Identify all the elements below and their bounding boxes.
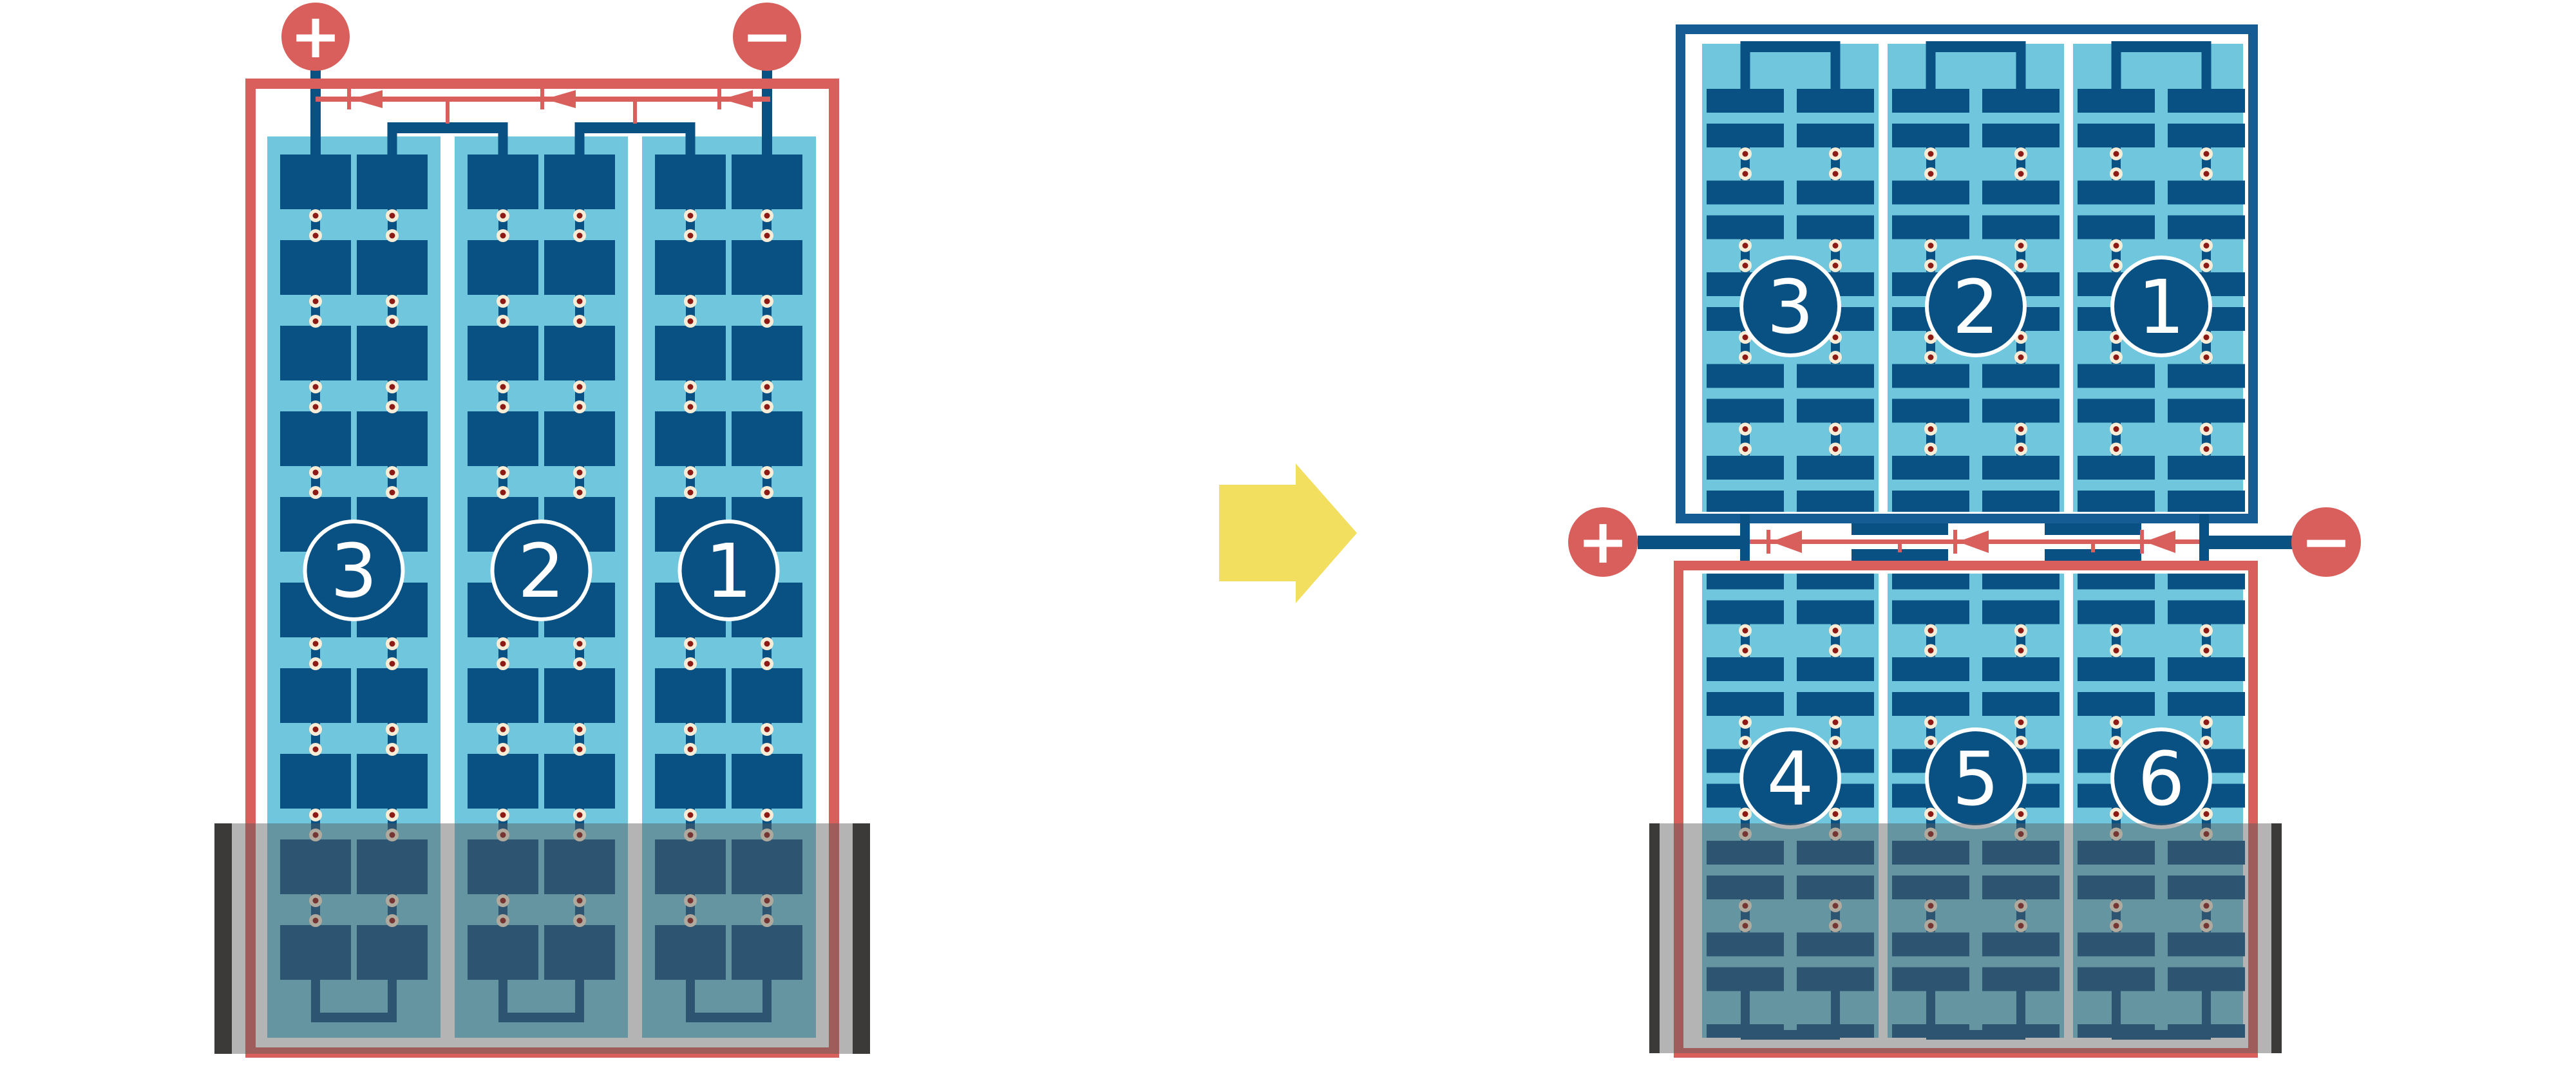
top-jumper-connector (2112, 52, 2121, 89)
battery-cell (1982, 657, 2060, 681)
cell-connector-dot-icon (390, 812, 395, 818)
cell-connector-dot-icon (1928, 151, 1934, 157)
cell-connector-dot-icon (2204, 355, 2210, 361)
cell-connector-dot-icon (313, 233, 319, 239)
cell-connector-dot-icon (1928, 648, 1934, 653)
cell-connector-dot-icon (1833, 811, 1839, 817)
tray-side-rail (1649, 823, 1660, 1053)
cell-connector-dot-icon (2204, 426, 2210, 432)
cell-connector-dot-icon (1928, 628, 1934, 633)
cell-connector-dot-icon (2018, 628, 2024, 633)
cell-connector-dot-icon (1928, 446, 1934, 452)
battery-cell (544, 155, 615, 209)
battery-cell (1707, 657, 1784, 681)
battery-cell (1892, 216, 1969, 239)
diode-arrow-icon (2145, 530, 2175, 553)
cell-connector-dot-icon (764, 213, 770, 219)
minus-terminal-icon-label: − (2300, 507, 2352, 577)
battery-cell (1797, 456, 1874, 480)
cell-connector-dot-icon (688, 727, 694, 733)
cell-connector-dot-icon (2114, 628, 2119, 633)
battery-cell (1982, 692, 2060, 716)
cell-connector-dot-icon (1743, 426, 1748, 432)
cell-connector-dot-icon (1743, 355, 1748, 361)
battery-cell (2168, 216, 2245, 239)
cell-connector-dot-icon (2018, 355, 2024, 361)
cell-connector-dot-icon (390, 661, 395, 667)
cell-connector-dot-icon (390, 319, 395, 324)
cell-connector-dot-icon (2018, 335, 2024, 341)
battery-cell (1982, 574, 2060, 590)
cell-connector-dot-icon (577, 641, 583, 647)
cell-connector-dot-icon (500, 727, 506, 733)
cell-connector-dot-icon (2204, 151, 2210, 157)
diode-tick (1953, 530, 1957, 554)
cell-connector-dot-icon (500, 490, 506, 496)
left-battery-module: 321+− (214, 1, 870, 1054)
battery-cell (544, 668, 615, 723)
battery-cell (1892, 491, 1969, 512)
cell-connector-dot-icon (2018, 740, 2024, 745)
battery-cell (1707, 692, 1784, 716)
column-number-label: 3 (330, 529, 377, 615)
cell-connector-dot-icon (1928, 740, 1934, 745)
bus-drop-link (2091, 544, 2095, 552)
transform-arrow-icon (1219, 464, 1357, 603)
battery-cell (1892, 181, 1969, 205)
cell-connector-dot-icon (1833, 720, 1839, 726)
battery-cell (1797, 657, 1874, 681)
battery-cell (2078, 574, 2155, 590)
battery-cell (1707, 491, 1784, 512)
cell-connector-dot-icon (390, 384, 395, 390)
cell-connector-dot-icon (2114, 426, 2119, 432)
cell-connector-dot-icon (577, 812, 583, 818)
battery-cell (357, 326, 428, 380)
bus-drop-link (1898, 544, 1902, 552)
cell-connector-dot-icon (500, 299, 506, 304)
cell-connector-dot-icon (577, 661, 583, 667)
cell-connector-dot-icon (2114, 720, 2119, 726)
battery-cell (1707, 364, 1784, 388)
cell-connector-dot-icon (390, 747, 395, 753)
battery-tray-overlay (232, 823, 853, 1054)
battery-cell (1982, 89, 2060, 113)
cell-connector-dot-icon (1833, 740, 1839, 745)
battery-cell (2168, 491, 2245, 512)
top-jumper-connector (575, 122, 696, 133)
diode-tick (1766, 530, 1770, 554)
battery-cell (357, 668, 428, 723)
cell-connector-dot-icon (688, 661, 694, 667)
cell-connector-dot-icon (500, 747, 506, 753)
cell-connector-dot-icon (688, 319, 694, 324)
battery-cell (280, 668, 351, 723)
battery-cell (1797, 216, 1874, 239)
cell-connector-dot-icon (1833, 171, 1839, 177)
battery-cell (1797, 399, 1874, 423)
cell-connector-dot-icon (577, 747, 583, 753)
column-divider (1879, 44, 1888, 512)
cell-connector-dot-icon (764, 299, 770, 304)
battery-cell (1707, 216, 1784, 239)
battery-cell (280, 411, 351, 466)
battery-cell (2078, 657, 2155, 681)
top-jumper-connector (575, 133, 585, 155)
cell-connector-dot-icon (2018, 648, 2024, 653)
cell-connector-dot-icon (2018, 171, 2024, 177)
battery-cell (1982, 216, 2060, 239)
battery-cell (544, 411, 615, 466)
battery-cell (1892, 89, 1969, 113)
battery-cell (1982, 399, 2060, 423)
battery-cell (2168, 124, 2245, 147)
battery-cell (357, 240, 428, 295)
battery-cell (1707, 574, 1784, 590)
cell-connector-dot-icon (688, 233, 694, 239)
top-jumper-connector (388, 122, 508, 133)
battery-cell (732, 754, 802, 809)
cell-connector-dot-icon (1833, 355, 1839, 361)
diode-arrow-icon (1771, 530, 1802, 553)
cell-connector-dot-icon (1833, 628, 1839, 633)
battery-cell (1892, 456, 1969, 480)
cell-connector-dot-icon (577, 233, 583, 239)
battery-cell (2168, 181, 2245, 205)
cell-connector-dot-icon (688, 812, 694, 818)
cell-connector-dot-icon (390, 404, 395, 410)
battery-cell (1982, 491, 2060, 512)
battery-cell (1707, 456, 1784, 480)
plus-terminal-icon-label: + (290, 1, 341, 72)
battery-cell (1892, 657, 1969, 681)
battery-cell (1707, 399, 1784, 423)
cell-connector-dot-icon (2204, 648, 2210, 653)
cell-connector-dot-icon (1928, 243, 1934, 248)
cell-connector-dot-icon (2018, 426, 2024, 432)
cell-connector-dot-icon (1833, 263, 1839, 268)
battery-cell (280, 754, 351, 809)
bus-drop-link (446, 102, 450, 124)
battery-cell (2168, 692, 2245, 716)
cell-connector-dot-icon (764, 384, 770, 390)
cell-connector-dot-icon (764, 812, 770, 818)
cell-connector-dot-icon (2204, 446, 2210, 452)
diode-tick (347, 89, 351, 109)
battery-cell (2168, 399, 2245, 423)
battery-cell (655, 668, 726, 723)
transform-arrow (1219, 464, 1357, 603)
diode-arrow-icon (1958, 530, 1989, 553)
battery-cell (1892, 364, 1969, 388)
cell-connector-dot-icon (2114, 648, 2119, 653)
battery-cell (1707, 89, 1784, 113)
minus-terminal-lead (2208, 536, 2292, 549)
battery-cell (1982, 124, 2060, 147)
battery-cell (732, 668, 802, 723)
top-jumper-connector (1926, 52, 1936, 89)
column-number-label: 2 (1952, 265, 1999, 351)
battery-cell (468, 155, 538, 209)
cell-connector-dot-icon (1928, 720, 1934, 726)
battery-cell (544, 240, 615, 295)
battery-cell (2078, 491, 2155, 512)
cell-connector-dot-icon (313, 490, 319, 496)
column-number-label: 1 (705, 529, 752, 615)
cell-connector-dot-icon (577, 384, 583, 390)
cell-connector-dot-icon (313, 299, 319, 304)
battery-cell (1797, 181, 1874, 205)
cell-connector-dot-icon (313, 641, 319, 647)
battery-cell (2078, 601, 2155, 624)
top-jumper-connector (1741, 52, 1750, 89)
diode-arrow-icon (352, 90, 383, 108)
battery-cell (1892, 692, 1969, 716)
battery-cell (1797, 692, 1874, 716)
battery-cell (468, 668, 538, 723)
cell-connector-dot-icon (390, 299, 395, 304)
cell-connector-dot-icon (2204, 740, 2210, 745)
diagram-canvas: 321+− 321+−456 (0, 0, 2576, 1068)
top-jumper-connector (498, 133, 508, 155)
cell-connector-dot-icon (688, 641, 694, 647)
cell-connector-dot-icon (390, 490, 395, 496)
battery-cell (2168, 364, 2245, 388)
column-number-label: 5 (1952, 736, 1999, 823)
battery-cell (280, 240, 351, 295)
cell-connector-dot-icon (2114, 740, 2119, 745)
column-number-label: 3 (1766, 265, 1814, 351)
battery-cell (2168, 574, 2245, 590)
cell-connector-dot-icon (2018, 243, 2024, 248)
cell-connector-dot-icon (764, 319, 770, 324)
battery-cell (2078, 364, 2155, 388)
cell-connector-dot-icon (1743, 648, 1748, 653)
cell-connector-dot-icon (313, 404, 319, 410)
cell-connector-dot-icon (688, 384, 694, 390)
cell-connector-dot-icon (2204, 720, 2210, 726)
cell-connector-dot-icon (688, 213, 694, 219)
cell-connector-dot-icon (1743, 811, 1748, 817)
cell-connector-dot-icon (2114, 811, 2119, 817)
battery-cell (544, 326, 615, 380)
cell-connector-dot-icon (2114, 151, 2119, 157)
cell-connector-dot-icon (313, 384, 319, 390)
battery-cell (2168, 89, 2245, 113)
cell-connector-dot-icon (2018, 263, 2024, 268)
battery-cell (357, 754, 428, 809)
battery-cell (655, 155, 726, 209)
cell-connector-dot-icon (313, 213, 319, 219)
diode-arrow-icon (545, 90, 576, 108)
battery-diagram-svg: 321+− 321+−456 (0, 0, 2576, 1068)
cell-connector-dot-icon (2114, 335, 2119, 341)
minus-terminal-tab (2199, 514, 2209, 561)
battery-cell (2168, 601, 2245, 624)
cell-connector-dot-icon (764, 490, 770, 496)
cell-connector-dot-icon (1743, 263, 1748, 268)
battery-cell (357, 411, 428, 466)
battery-cell (2168, 456, 2245, 480)
cell-connector-dot-icon (1743, 151, 1748, 157)
battery-cell (468, 240, 538, 295)
cell-connector-dot-icon (1928, 171, 1934, 177)
tray-side-rail (214, 823, 232, 1054)
cell-connector-dot-icon (764, 661, 770, 667)
battery-cell (280, 326, 351, 380)
battery-cell (1797, 364, 1874, 388)
battery-cell (1797, 574, 1874, 590)
cell-connector-dot-icon (1928, 355, 1934, 361)
cell-connector-dot-icon (313, 812, 319, 818)
cell-connector-dot-icon (2114, 243, 2119, 248)
cell-connector-dot-icon (390, 727, 395, 733)
cell-connector-dot-icon (390, 213, 395, 219)
module-link-tab (1851, 523, 1948, 535)
battery-cell (1797, 601, 1874, 624)
cell-connector-dot-icon (2204, 243, 2210, 248)
battery-cell (1982, 456, 2060, 480)
cell-connector-dot-icon (2018, 151, 2024, 157)
diode-tick (717, 89, 721, 109)
battery-cell (2168, 657, 2245, 681)
cell-connector-dot-icon (500, 661, 506, 667)
cell-connector-dot-icon (1743, 335, 1748, 341)
cell-connector-dot-icon (313, 661, 319, 667)
battery-cell (468, 326, 538, 380)
battery-cell (1892, 124, 1969, 147)
battery-cell (1707, 181, 1784, 205)
cell-connector-dot-icon (2114, 355, 2119, 361)
cell-connector-dot-icon (1743, 446, 1748, 452)
battery-cell (1892, 574, 1969, 590)
cell-connector-dot-icon (313, 747, 319, 753)
cell-connector-dot-icon (500, 641, 506, 647)
battery-cell (2078, 181, 2155, 205)
column-number-label: 4 (1766, 736, 1814, 823)
cell-connector-dot-icon (577, 490, 583, 496)
cell-connector-dot-icon (2204, 263, 2210, 268)
cell-connector-dot-icon (688, 490, 694, 496)
cell-connector-dot-icon (390, 233, 395, 239)
battery-cell (2078, 399, 2155, 423)
cell-connector-dot-icon (2114, 171, 2119, 177)
battery-cell (468, 411, 538, 466)
cell-connector-dot-icon (390, 470, 395, 476)
cell-connector-dot-icon (577, 404, 583, 410)
cell-connector-dot-icon (1928, 426, 1934, 432)
diode-tick (540, 89, 544, 109)
cell-connector-dot-icon (688, 747, 694, 753)
cell-connector-dot-icon (313, 727, 319, 733)
battery-cell (2078, 456, 2155, 480)
battery-cell (1982, 364, 2060, 388)
top-jumper-connector (1831, 52, 1841, 89)
cell-connector-dot-icon (1743, 720, 1748, 726)
top-jumper-connector (388, 133, 397, 155)
battery-cell (2078, 692, 2155, 716)
top-jumper-connector (1926, 41, 2026, 52)
cell-connector-dot-icon (1928, 811, 1934, 817)
module-link-tab (2045, 523, 2141, 535)
battery-cell (2078, 124, 2155, 147)
cell-connector-dot-icon (500, 213, 506, 219)
cell-connector-dot-icon (1928, 263, 1934, 268)
top-jumper-connector (686, 133, 696, 155)
cell-connector-dot-icon (1833, 151, 1839, 157)
battery-cell (1797, 89, 1874, 113)
cell-connector-dot-icon (1833, 648, 1839, 653)
cell-connector-dot-icon (2204, 335, 2210, 341)
tray-side-rail (853, 823, 870, 1054)
battery-cell (1707, 124, 1784, 147)
cell-connector-dot-icon (1743, 243, 1748, 248)
battery-cell (1797, 491, 1874, 512)
cell-connector-dot-icon (577, 319, 583, 324)
plus-terminal-icon-label: + (1577, 507, 1629, 577)
battery-cell (732, 240, 802, 295)
column-number-label: 1 (2137, 265, 2184, 351)
cell-connector-dot-icon (1928, 335, 1934, 341)
cell-connector-dot-icon (577, 299, 583, 304)
battery-cell (544, 754, 615, 809)
cell-connector-dot-icon (577, 213, 583, 219)
battery-cell (1892, 601, 1969, 624)
cell-connector-dot-icon (313, 319, 319, 324)
battery-cell (655, 411, 726, 466)
cell-connector-dot-icon (500, 812, 506, 818)
battery-cell (655, 754, 726, 809)
cell-connector-dot-icon (688, 470, 694, 476)
diode-arrow-icon (722, 90, 753, 108)
stacked-battery-assembly: 321+−456 (1568, 30, 2361, 1054)
column-divider (2064, 44, 2073, 512)
battery-cell (280, 155, 351, 209)
cell-connector-dot-icon (688, 404, 694, 410)
battery-cell (732, 411, 802, 466)
battery-cell (1707, 601, 1784, 624)
plus-terminal-tab (1740, 514, 1750, 561)
cell-connector-dot-icon (764, 747, 770, 753)
top-jumper-connector (1741, 41, 1841, 52)
top-jumper-connector (2016, 52, 2026, 89)
battery-cell (1797, 124, 1874, 147)
cell-connector-dot-icon (764, 233, 770, 239)
battery-cell (357, 155, 428, 209)
cell-connector-dot-icon (2114, 263, 2119, 268)
cell-connector-dot-icon (2018, 720, 2024, 726)
tray-side-rail (2271, 823, 2282, 1053)
column-number-label: 6 (2137, 736, 2184, 823)
cell-connector-dot-icon (1743, 628, 1748, 633)
battery-cell (1982, 181, 2060, 205)
cell-connector-dot-icon (500, 470, 506, 476)
battery-tray-overlay (1660, 823, 2271, 1053)
cell-connector-dot-icon (500, 404, 506, 410)
battery-cell (1892, 399, 1969, 423)
battery-cell (2078, 216, 2155, 239)
battery-cell (732, 155, 802, 209)
cell-connector-dot-icon (2018, 446, 2024, 452)
cell-connector-dot-icon (500, 319, 506, 324)
cell-connector-dot-icon (1833, 446, 1839, 452)
battery-cell (732, 326, 802, 380)
cell-connector-dot-icon (390, 641, 395, 647)
cell-connector-dot-icon (2204, 811, 2210, 817)
plus-terminal-lead (1638, 536, 1741, 549)
cell-connector-dot-icon (1743, 171, 1748, 177)
cell-connector-dot-icon (577, 727, 583, 733)
